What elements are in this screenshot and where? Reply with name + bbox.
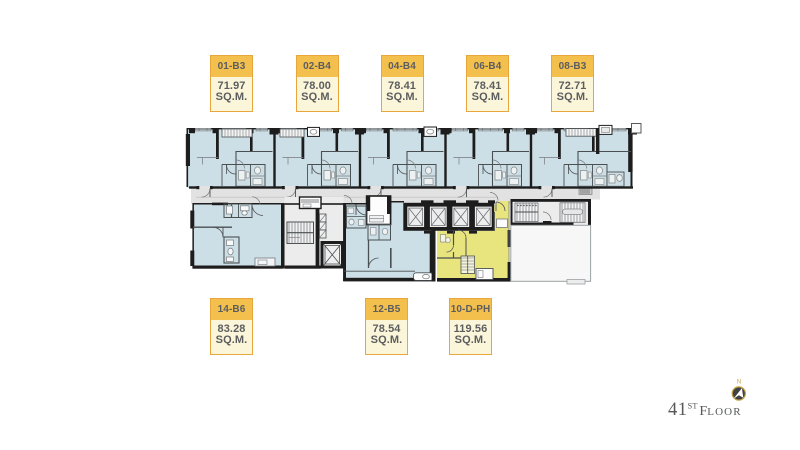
svg-text:N: N xyxy=(737,380,741,386)
